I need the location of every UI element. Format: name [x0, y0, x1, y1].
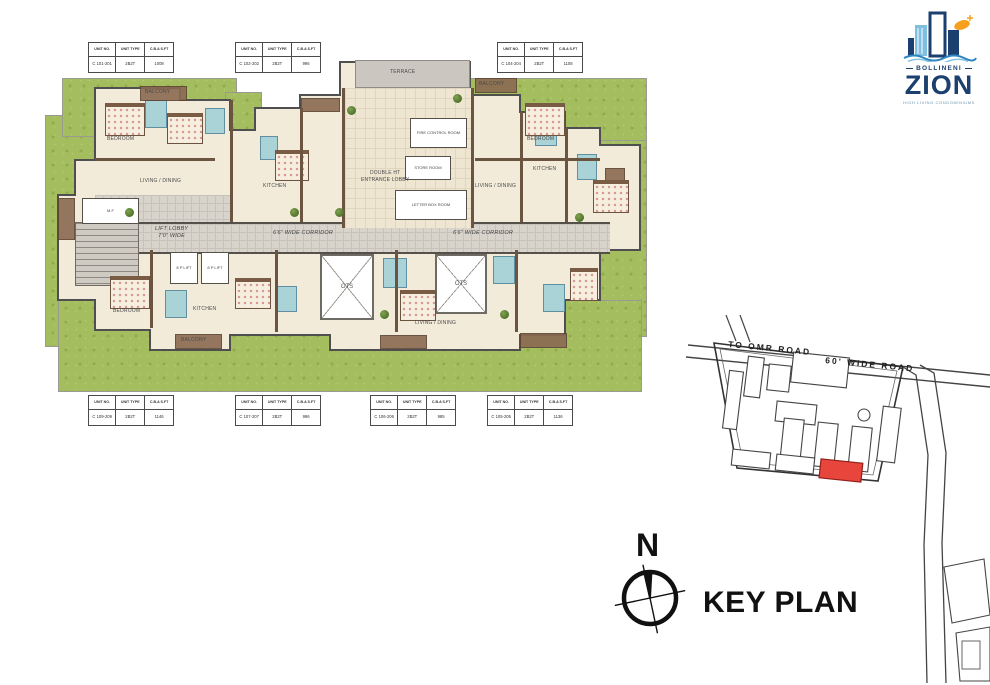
wall-segment: [395, 250, 398, 332]
compass-n-label: N: [636, 527, 659, 563]
ots-2-label: OTS: [455, 281, 467, 287]
unit-table: UNIT NO. UNIT TYPE C.B.A S.FT C 109-209 …: [88, 395, 174, 426]
unit-type: 2B2T: [398, 410, 427, 425]
unit-cba: 996: [292, 57, 320, 72]
floor-plan: M.F 8 P LIFT 8 P LIFT FIRE CONTROL ROOM …: [45, 58, 645, 398]
wall-segment: [475, 158, 600, 161]
lift-1-label: 8 P LIFT: [176, 266, 191, 270]
unit-table-header-type: UNIT TYPE: [398, 396, 427, 409]
bathroom: [205, 108, 225, 134]
store-room: STORE ROOM: [405, 156, 451, 180]
ots-court-2: OTS: [435, 254, 487, 314]
unit-table-header-cba: C.B.A S.FT: [145, 396, 173, 409]
wall-segment: [230, 100, 233, 222]
unit-type: 2B2T: [116, 410, 145, 425]
unit-cba: 996: [292, 410, 320, 425]
room-label-kitchen: KITCHEN: [533, 166, 556, 172]
unit-cba: 1136: [544, 410, 572, 425]
store-room-label: STORE ROOM: [414, 166, 441, 170]
unit-type: 2B2T: [515, 410, 544, 425]
unit-no: C 109-209: [89, 410, 116, 425]
unit-no: C 105-205: [488, 410, 515, 425]
unit-cba: 985: [427, 410, 455, 425]
brand-main-text: ZION: [891, 72, 987, 99]
plant-icon: [125, 208, 134, 217]
lift-1: 8 P LIFT: [170, 252, 198, 284]
unit-no: C 106-206: [371, 410, 398, 425]
bathroom: [493, 256, 515, 284]
bed: [593, 180, 629, 213]
unit-type: 2B2T: [525, 57, 554, 72]
room-label-bedroom: BEDROOM: [527, 136, 554, 142]
unit-no: C 102-202: [236, 57, 263, 72]
bed: [110, 276, 150, 309]
wall-segment: [300, 108, 303, 222]
unit-table-header-no: UNIT NO.: [371, 396, 398, 409]
lift-lobby-label: LIFT LOBBY 7'0" WIDE: [155, 226, 188, 239]
room-label-living: LIVING / DINING: [415, 320, 456, 326]
unit-table-header-type: UNIT TYPE: [525, 43, 554, 56]
north-arrow: N: [608, 526, 692, 638]
entrance-line1: DOUBLE HT: [370, 170, 400, 176]
unit-cba: 1008: [145, 57, 173, 72]
unit-cba: 1108: [554, 57, 582, 72]
wall-segment: [275, 250, 278, 332]
plant-icon: [290, 208, 299, 217]
ots-court-1: OTS: [320, 254, 374, 320]
lift-lobby-line1: LIFT LOBBY: [155, 226, 188, 232]
corridor-label-left: 6'6" WIDE CORRIDOR: [273, 230, 333, 236]
unit-table: UNIT NO. UNIT TYPE C.B.A S.FT C 105-205 …: [487, 395, 573, 426]
unit-table-header-cba: C.B.A S.FT: [292, 43, 320, 56]
unit-table-header-type: UNIT TYPE: [263, 43, 292, 56]
corridor-label-right: 6'6" WIDE CORRIDOR: [453, 230, 513, 236]
unit-table: UNIT NO. UNIT TYPE C.B.A S.FT C 107-207 …: [235, 395, 321, 426]
unit-no: C 107-207: [236, 410, 263, 425]
wall-segment: [520, 112, 523, 222]
unit-type: 2B2T: [263, 57, 292, 72]
unit-table-header-no: UNIT NO.: [89, 396, 116, 409]
unit-no: C 104-204: [498, 57, 525, 72]
room-label-balcony: BALCONY: [145, 89, 170, 95]
unit-table-header-type: UNIT TYPE: [116, 396, 145, 409]
wall-segment: [515, 250, 518, 332]
room-label-bedroom: BEDROOM: [113, 308, 140, 314]
bathroom: [277, 286, 297, 312]
plant-icon: [335, 208, 344, 217]
balcony-strip: [380, 335, 427, 349]
lift-2-label: 8 P LIFT: [207, 266, 222, 270]
balcony-strip: [520, 333, 567, 348]
mf-room-label: M.F: [107, 209, 114, 213]
room-label-living: LIVING / DINING: [475, 183, 516, 189]
terrace-label: TERRACE: [390, 69, 415, 75]
bed: [105, 103, 145, 136]
bathroom: [165, 290, 187, 318]
unit-table: UNIT NO. UNIT TYPE C.B.A S.FT C 104-204 …: [497, 42, 583, 73]
room-label-living: LIVING / DINING: [140, 178, 181, 184]
unit-type: 2B2T: [263, 410, 292, 425]
unit-table-header-cba: C.B.A S.FT: [554, 43, 582, 56]
room-label-balcony: BALCONY: [181, 337, 206, 343]
plant-icon: [380, 310, 389, 319]
room-label-kitchen: KITCHEN: [193, 306, 216, 312]
unit-table-header-type: UNIT TYPE: [116, 43, 145, 56]
lift-2: 8 P LIFT: [201, 252, 229, 284]
fire-control-label: FIRE CONTROL ROOM: [417, 131, 460, 135]
bed: [570, 268, 598, 301]
brand-logo: BOLLINENI ZION HIGH LIVING CONDOMINIUMS: [891, 8, 987, 105]
entrance-line2: ENTRANCE LOBBY: [361, 177, 409, 183]
unit-table-header-no: UNIT NO.: [488, 396, 515, 409]
bathroom: [543, 284, 565, 312]
balcony-strip: [301, 98, 340, 112]
unit-cba: 1146: [145, 410, 173, 425]
room-label-balcony: BALCONY: [479, 81, 504, 87]
logo-buildings-icon: [892, 8, 986, 62]
unit-table-header-cba: C.B.A S.FT: [427, 396, 455, 409]
unit-table-header-cba: C.B.A S.FT: [544, 396, 572, 409]
plant-icon: [500, 310, 509, 319]
unit-table: UNIT NO. UNIT TYPE C.B.A S.FT C 101-201 …: [88, 42, 174, 73]
unit-no: C 101-201: [89, 57, 116, 72]
wall-segment: [565, 128, 568, 222]
plant-icon: [347, 106, 356, 115]
bed: [167, 113, 203, 144]
road-label-omr: TO OMR ROAD: [728, 339, 812, 357]
brand-tagline: HIGH LIVING CONDOMINIUMS: [891, 100, 987, 105]
highlighted-building: [819, 459, 863, 482]
wall-segment: [95, 158, 215, 161]
bed: [235, 278, 271, 309]
wall-segment: [150, 250, 153, 328]
key-plan-title: KEY PLAN: [703, 586, 858, 620]
unit-table-header-type: UNIT TYPE: [515, 396, 544, 409]
plant-icon: [453, 94, 462, 103]
unit-table-header-cba: C.B.A S.FT: [292, 396, 320, 409]
room-label-bedroom: BEDROOM: [107, 136, 134, 142]
unit-table: UNIT NO. UNIT TYPE C.B.A S.FT C 106-206 …: [370, 395, 456, 426]
unit-table: UNIT NO. UNIT TYPE C.B.A S.FT C 102-202 …: [235, 42, 321, 73]
unit-table-header-cba: C.B.A S.FT: [145, 43, 173, 56]
key-plan-map: TO OMR ROAD 60' WIDE ROAD: [640, 315, 990, 683]
unit-table-header-type: UNIT TYPE: [263, 396, 292, 409]
balcony-strip: [58, 198, 75, 240]
letter-box-label: LETTER BOX ROOM: [412, 203, 450, 207]
unit-table-header-no: UNIT NO.: [236, 43, 263, 56]
entrance-lobby-label: DOUBLE HT ENTRANCE LOBBY: [361, 170, 409, 183]
plant-icon: [575, 213, 584, 222]
unit-type: 2B2T: [116, 57, 145, 72]
room-label-kitchen: KITCHEN: [263, 183, 286, 189]
unit-table-header-no: UNIT NO.: [236, 396, 263, 409]
bathroom: [145, 100, 167, 128]
bed: [275, 150, 309, 181]
fire-control-room: FIRE CONTROL ROOM: [410, 118, 467, 148]
bed: [525, 103, 565, 136]
bed: [400, 290, 436, 321]
ots-1-label: OTS: [341, 284, 353, 290]
unit-table-header-no: UNIT NO.: [498, 43, 525, 56]
letter-box-room: LETTER BOX ROOM: [395, 190, 467, 220]
lift-lobby-line2: 7'0" WIDE: [158, 233, 185, 239]
unit-table-header-no: UNIT NO.: [89, 43, 116, 56]
